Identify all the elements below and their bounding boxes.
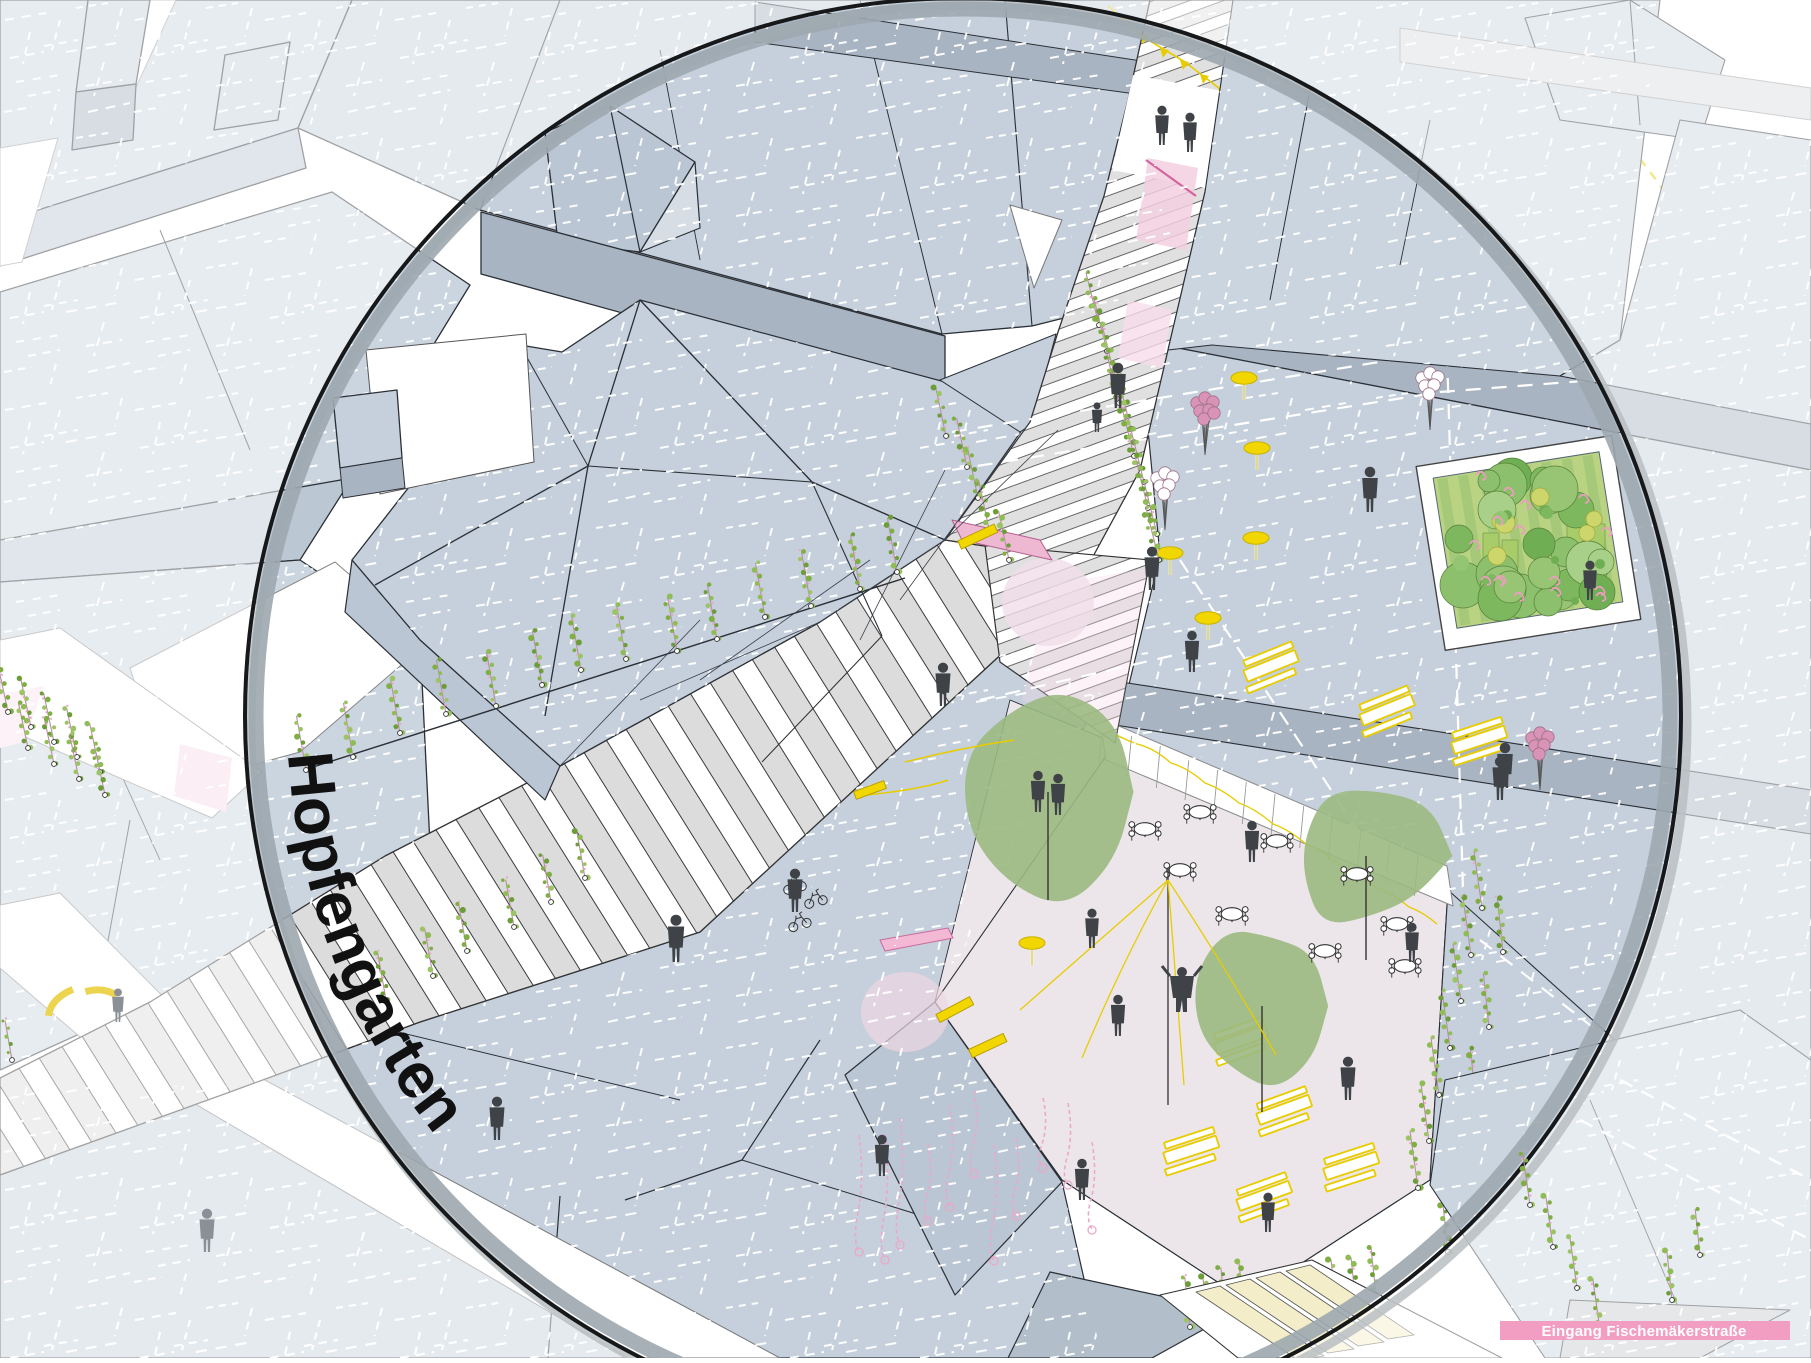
svg-text:Eingang Fischemäkerstraße: Eingang Fischemäkerstraße xyxy=(1541,1323,1746,1340)
